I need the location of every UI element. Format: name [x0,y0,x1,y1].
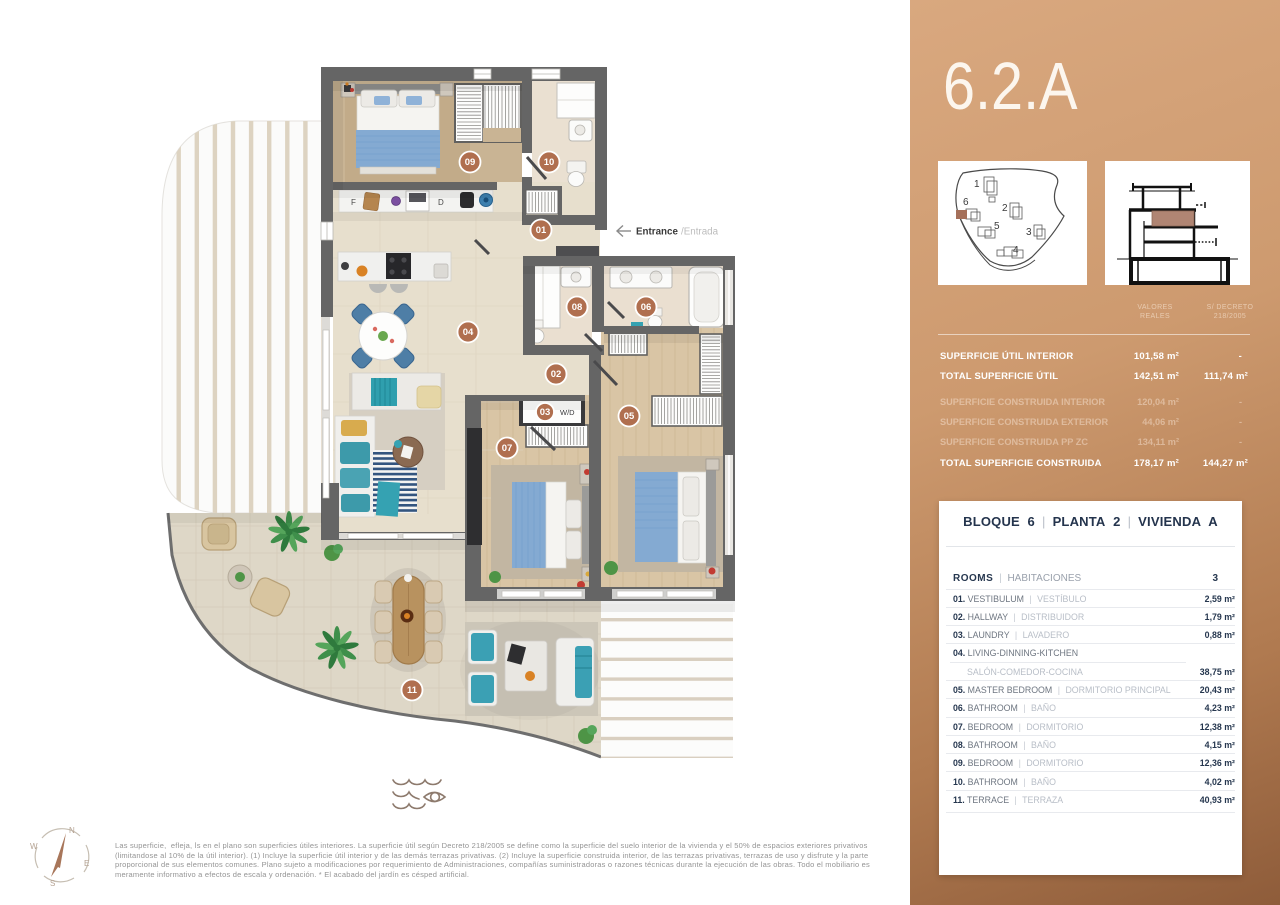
svg-text:D: D [438,198,444,207]
svg-text:F: F [351,198,356,207]
svg-text:4: 4 [1013,245,1019,256]
svg-text:6: 6 [963,197,969,208]
svg-text:03: 03 [540,407,551,418]
svg-text:5: 5 [994,221,1000,232]
svg-text:09: 09 [465,157,476,168]
svg-text:S: S [50,879,55,888]
svg-text:01: 01 [536,225,547,236]
svg-text:08: 08 [572,302,583,313]
svg-text:04: 04 [463,327,474,338]
svg-text:Entrance: Entrance [636,227,678,238]
svg-text:06: 06 [641,302,652,313]
svg-text:1: 1 [974,179,980,190]
svg-text:07: 07 [502,443,513,454]
svg-text:E: E [84,859,89,868]
svg-text:N: N [69,826,75,835]
svg-text:3: 3 [1026,227,1032,238]
svg-text:10: 10 [544,157,555,168]
svg-text:11: 11 [407,685,418,696]
svg-text:W: W [30,842,38,851]
svg-text:/Entrada: /Entrada [681,227,719,238]
svg-text:2: 2 [1002,203,1008,214]
svg-text:05: 05 [624,411,635,422]
svg-text:02: 02 [551,369,562,380]
